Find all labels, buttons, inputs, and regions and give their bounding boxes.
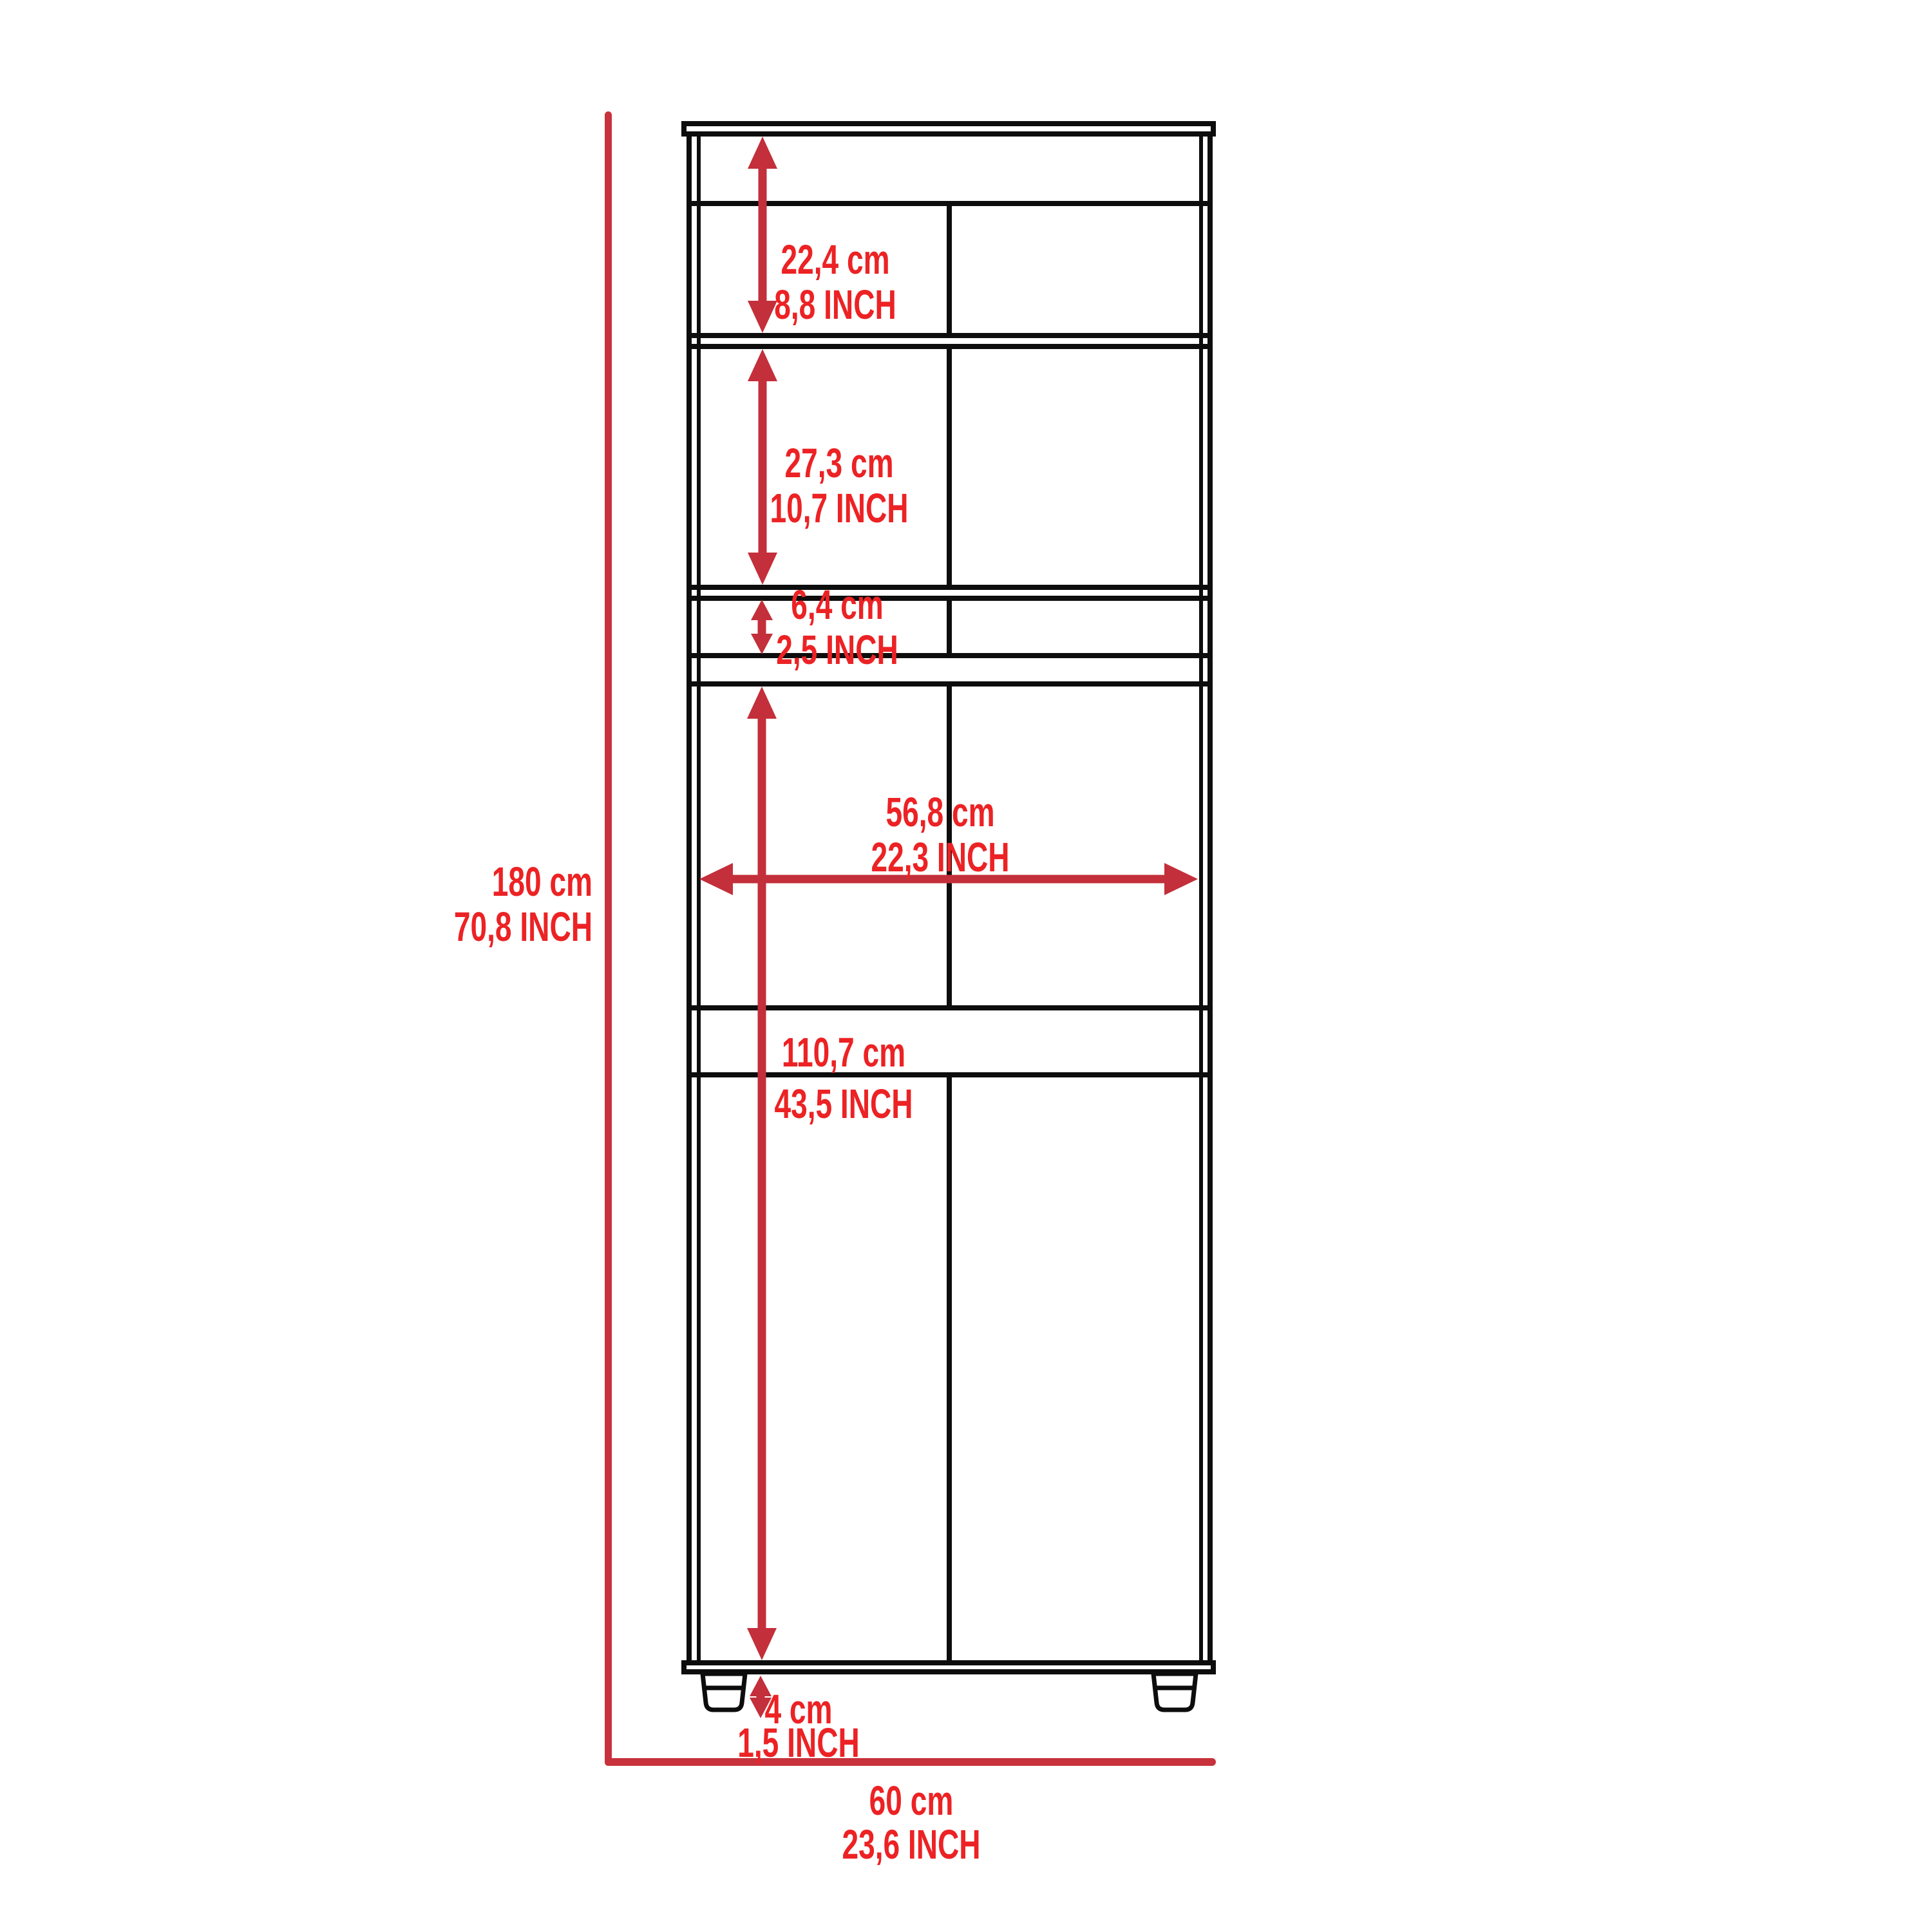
center-divider-segment-3	[947, 601, 952, 653]
lower-section-inch: 43,5 INCH	[751, 1078, 936, 1130]
dimension-label-second-section: 27,3 cm 10,7 INCH	[746, 440, 932, 531]
total-width-inch: 23,6 INCH	[819, 1823, 1004, 1866]
small-shelf-inch: 2,5 INCH	[744, 627, 930, 672]
second-section-inch: 10,7 INCH	[746, 486, 932, 531]
inner-width-inch: 22,3 INCH	[848, 835, 1033, 880]
center-divider-segment-1	[947, 206, 952, 333]
height-axis-line	[605, 111, 612, 1766]
dimension-label-lower-section: 110,7 cm 43,5 INCH	[751, 1027, 936, 1130]
lower-section-cm: 110,7 cm	[751, 1027, 936, 1078]
total-width-cm: 60 cm	[819, 1779, 1004, 1823]
right-foot	[1150, 1673, 1199, 1713]
inner-width-cm: 56,8 cm	[848, 790, 1033, 835]
dimension-label-total-height: 180 cm 70,8 INCH	[407, 859, 592, 949]
left-wall-inner-line	[697, 135, 701, 1665]
dimension-label-feet-height: 4 cm 1,5 INCH	[706, 1692, 891, 1759]
total-height-cm: 180 cm	[407, 859, 592, 904]
second-section-cm: 27,3 cm	[746, 440, 932, 486]
left-wall-outer-line	[687, 135, 692, 1665]
right-wall-inner-line	[1199, 135, 1203, 1665]
dimension-label-top-section: 22,4 cm 8,8 INCH	[743, 237, 928, 327]
total-height-inch: 70,8 INCH	[407, 904, 592, 949]
dimension-label-inner-width: 56,8 cm 22,3 INCH	[848, 790, 1033, 880]
dimension-label-total-width: 60 cm 23,6 INCH	[819, 1779, 1004, 1866]
top-section-cm: 22,4 cm	[743, 237, 928, 282]
top-section-inch: 8,8 INCH	[743, 282, 928, 327]
cabinet-top-cap	[681, 121, 1216, 137]
feet-height-inch: 1,5 INCH	[706, 1726, 891, 1759]
dimension-label-small-shelf: 6,4 cm 2,5 INCH	[744, 582, 930, 672]
cabinet-dimension-diagram: 180 cm 70,8 INCH 22,4 cm 8,8 INCH 27,3 c…	[0, 0, 1932, 1932]
small-shelf-cm: 6,4 cm	[744, 582, 930, 627]
shelf-line-2a	[692, 333, 1207, 338]
shelf-line-2b	[692, 344, 1207, 349]
width-axis-line	[605, 1758, 1216, 1766]
right-wall-outer-line	[1207, 135, 1213, 1665]
shelf-line-5	[692, 681, 1207, 687]
cabinet-base-band	[681, 1660, 1216, 1674]
center-divider-segment-2	[947, 349, 952, 585]
dim-arrow-lower-section	[747, 687, 777, 1660]
center-divider-segment-5	[947, 1077, 952, 1660]
